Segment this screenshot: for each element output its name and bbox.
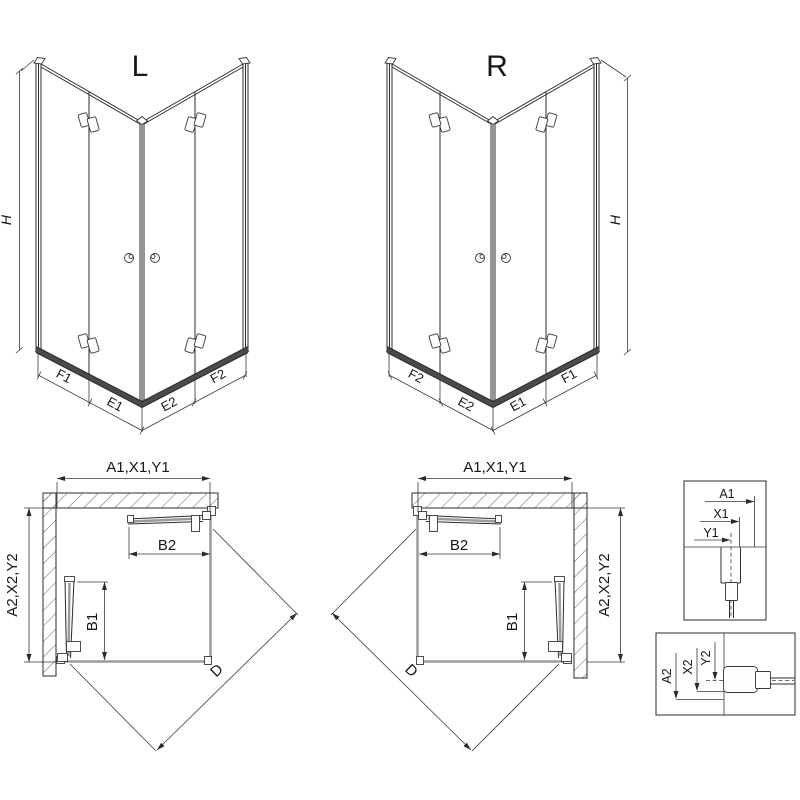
corner-block-bl: [417, 657, 424, 665]
arrowhead: [731, 519, 739, 524]
bifold-door-side: [549, 577, 572, 662]
arrowhead: [418, 476, 426, 481]
door-hinge-block: [67, 642, 81, 652]
door-corner-bracket: [58, 654, 68, 662]
detail-label-y1: Y1: [703, 526, 718, 540]
arrowhead: [202, 476, 210, 481]
door-glass: [131, 519, 201, 522]
height-label-left: H: [0, 214, 14, 225]
corner-block-br: [205, 657, 212, 665]
bifold-door-top: [419, 512, 502, 532]
detail-label-y2: Y2: [699, 650, 713, 665]
profile-clamp: [726, 583, 738, 601]
arrowhead: [129, 552, 137, 557]
wall-left: [43, 493, 56, 676]
door-corner-bracket: [562, 654, 572, 662]
arrowhead: [674, 691, 679, 699]
height-dim-right: [601, 60, 631, 355]
door-hinge-block: [549, 642, 563, 652]
wall-profile-section: [724, 667, 758, 693]
arrowhead: [57, 476, 65, 481]
height-label-right: H: [607, 214, 623, 225]
arrowhead: [27, 654, 32, 662]
bifold-door-side: [58, 577, 81, 662]
depth-dim-label: A2,X2,Y2: [4, 553, 21, 616]
arrowhead: [722, 538, 730, 543]
height-dim-left: [16, 60, 34, 353]
detail-box-wall-profile-bottom: A2 X2 Y2: [656, 633, 795, 715]
door-corner-bracket: [203, 512, 211, 520]
door-corner-bracket: [419, 512, 427, 520]
width-dim-label: A1,X1,Y1: [463, 459, 526, 476]
arrowhead: [618, 508, 623, 516]
plan-view-left: A1,X1,Y1 A2,X2,Y2 B2 B1 D: [4, 459, 298, 751]
depth-dim-label: A2,X2,Y2: [596, 553, 613, 616]
door-hinge-block: [192, 516, 200, 532]
shower-enclosure-diagram: L H F1 E1 E2 F2 R H F2 E2 E1 F1: [0, 0, 800, 800]
arrowhead: [746, 499, 754, 504]
arrowhead: [522, 582, 527, 590]
door-end-bracket: [65, 577, 75, 582]
arrowhead: [202, 552, 210, 557]
door-side-dim-label: B1: [504, 613, 521, 631]
door-top-dim-label: B2: [450, 537, 468, 554]
arrowhead: [618, 654, 623, 662]
door-top-dim-label: B2: [158, 537, 176, 554]
iso-view-left: L H F1 E1 E2 F2: [0, 50, 250, 435]
detail-label-x2: X2: [681, 659, 695, 674]
glass-section-lines: [730, 601, 734, 619]
arrowhead: [522, 652, 527, 660]
arrowhead: [492, 552, 500, 557]
iso-view-right: R H F2 E2 E1 F1: [385, 50, 631, 435]
variant-label-right: R: [486, 50, 508, 83]
wall-right: [574, 493, 587, 678]
door-glass: [428, 519, 498, 522]
arrowhead: [102, 582, 107, 590]
technical-drawing-sheet: L H F1 E1 E2 F2 R H F2 E2 E1 F1: [0, 0, 800, 800]
door-end-bracket: [555, 577, 565, 582]
door-side-dim-label: B1: [84, 613, 101, 631]
arrowhead: [102, 652, 107, 660]
arrowhead: [695, 683, 700, 691]
arrowhead: [564, 476, 572, 481]
detail-label-x1: X1: [713, 507, 728, 521]
detail-label-a1: A1: [719, 487, 734, 501]
detail-label-a2: A2: [660, 668, 674, 683]
bifold-door-top: [128, 512, 211, 532]
wall-top: [43, 493, 218, 508]
door-end-bracket: [128, 516, 134, 523]
width-dim-label: A1,X1,Y1: [106, 459, 169, 476]
arrowhead: [27, 508, 32, 516]
profile-clamp: [756, 672, 771, 689]
detail-box-wall-profile-top: A1 X1 Y1: [684, 481, 766, 620]
door-end-bracket: [496, 516, 502, 523]
glass-section-lines: [770, 678, 795, 684]
plan-view-right: A1,X1,Y1 A2,X2,Y2 B2 B1 D: [331, 459, 625, 751]
door-hinge-block: [430, 516, 438, 532]
arrowhead: [419, 552, 427, 557]
variant-label-left: L: [132, 50, 149, 83]
wall-top: [412, 493, 587, 508]
arrowhead: [713, 672, 718, 680]
door-side-dim: [521, 582, 552, 660]
